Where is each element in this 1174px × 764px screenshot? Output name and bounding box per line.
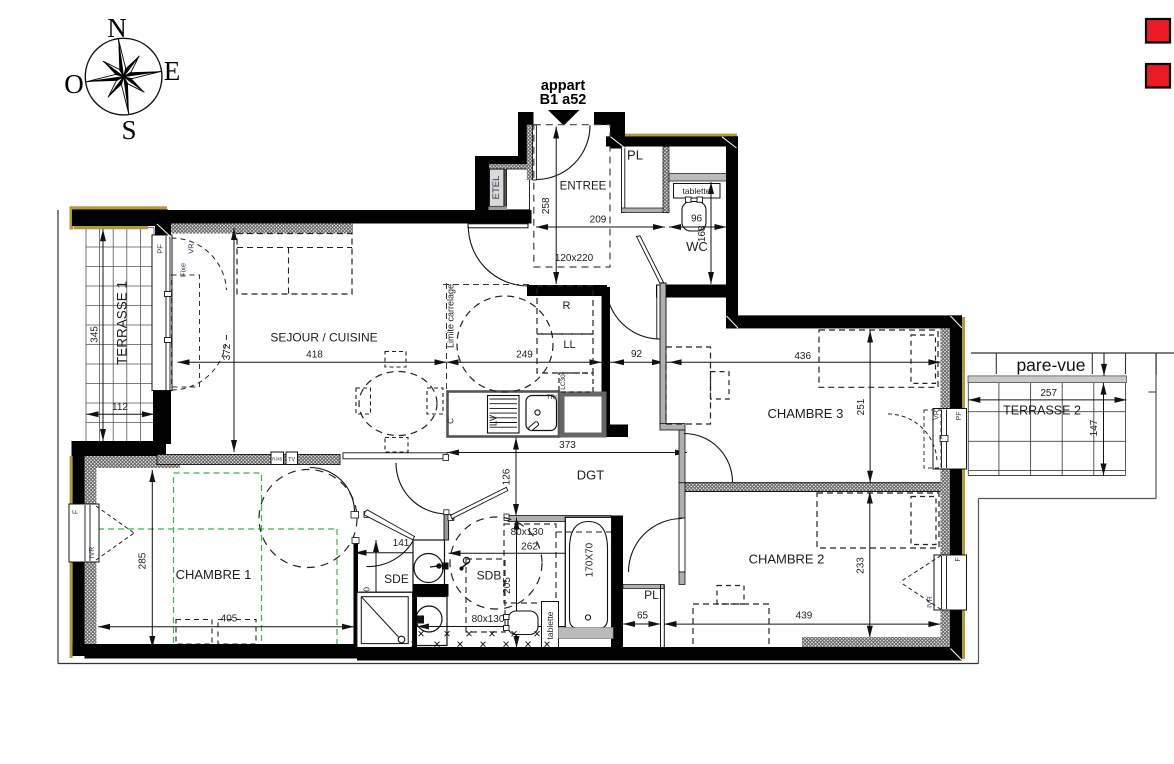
svg-text:TV: TV [288,457,295,463]
svg-text:TERRASSE 2: TERRASSE 2 [1003,404,1081,418]
svg-text:257: 257 [1040,388,1057,399]
svg-text:SDB: SDB [477,569,502,583]
svg-text:tablette: tablette [683,186,711,196]
svg-text:C: C [446,418,455,424]
svg-text:E: E [164,56,181,86]
svg-text:170X70: 170X70 [584,542,595,577]
svg-text:96: 96 [691,214,703,225]
svg-text:S: S [121,115,136,145]
svg-text:258: 258 [541,197,552,214]
svg-text:F: F [955,557,962,561]
svg-text:262: 262 [521,542,538,553]
svg-text:×: × [417,627,424,641]
svg-text:373: 373 [559,440,576,451]
svg-text:tablette: tablette [545,611,555,639]
svg-text:LL: LL [563,339,575,351]
svg-text:436: 436 [794,351,811,362]
svg-text:126: 126 [502,468,513,485]
svg-text:233: 233 [856,557,867,574]
svg-text:VR: VR [933,410,940,420]
svg-text:405: 405 [221,614,238,625]
svg-text:CHAMBRE 2: CHAMBRE 2 [749,552,825,567]
svg-text:VR: VR [187,243,196,254]
svg-text:R: R [563,300,571,312]
svg-text:92: 92 [631,349,643,360]
svg-text:120x220: 120x220 [555,253,594,264]
svg-text:PF: PF [156,244,165,254]
svg-text:×: × [443,627,450,641]
svg-text:LC30: LC30 [560,374,567,390]
svg-text:372: 372 [222,343,233,360]
svg-text:205: 205 [502,577,513,594]
svg-text:SEJOUR / CUISINE: SEJOUR / CUISINE [270,331,377,345]
svg-text:LV: LV [489,414,500,426]
svg-text:O: O [64,69,84,99]
svg-text:251: 251 [856,398,867,415]
svg-text:209: 209 [590,215,607,226]
svg-text:TERRASSE 1: TERRASSE 1 [115,281,130,365]
svg-text:ENTREE: ENTREE [560,181,607,193]
svg-text:Limite carrelage: Limite carrelage [446,284,456,348]
svg-text:SDE: SDE [384,572,409,586]
svg-text:×: × [510,627,517,641]
svg-text:B1 a52: B1 a52 [540,92,587,108]
svg-text:IVR: IVR [927,596,934,608]
svg-text:345: 345 [90,326,101,343]
svg-text:PL: PL [644,588,659,602]
svg-text:×: × [533,627,540,641]
svg-text:141: 141 [393,538,410,549]
svg-text:TRI: TRI [546,394,557,401]
svg-text:PL: PL [627,148,643,163]
svg-text:IVR: IVR [89,547,96,559]
svg-text:F: F [73,510,80,514]
svg-text:CHAMBRE 1: CHAMBRE 1 [176,567,252,582]
svg-text:PF: PF [956,412,963,421]
svg-text:439: 439 [796,611,813,622]
svg-text:RJ45: RJ45 [272,457,282,462]
svg-text:×: × [488,627,495,641]
svg-text:147: 147 [1089,419,1100,436]
svg-text:×: × [465,627,472,641]
svg-text:CHAMBRE 3: CHAMBRE 3 [767,406,843,421]
svg-text:WC: WC [686,239,708,254]
svg-text:65: 65 [637,611,649,622]
svg-text:pare-vue: pare-vue [1016,355,1085,375]
svg-text:DGT: DGT [577,468,605,483]
svg-text:ETEL: ETEL [491,176,502,200]
svg-text:418: 418 [306,350,323,361]
svg-text:112: 112 [112,402,128,413]
svg-text:285: 285 [138,552,149,569]
svg-text:249: 249 [516,350,533,361]
svg-text:N: N [107,13,127,43]
svg-text:80x130: 80x130 [472,614,505,625]
